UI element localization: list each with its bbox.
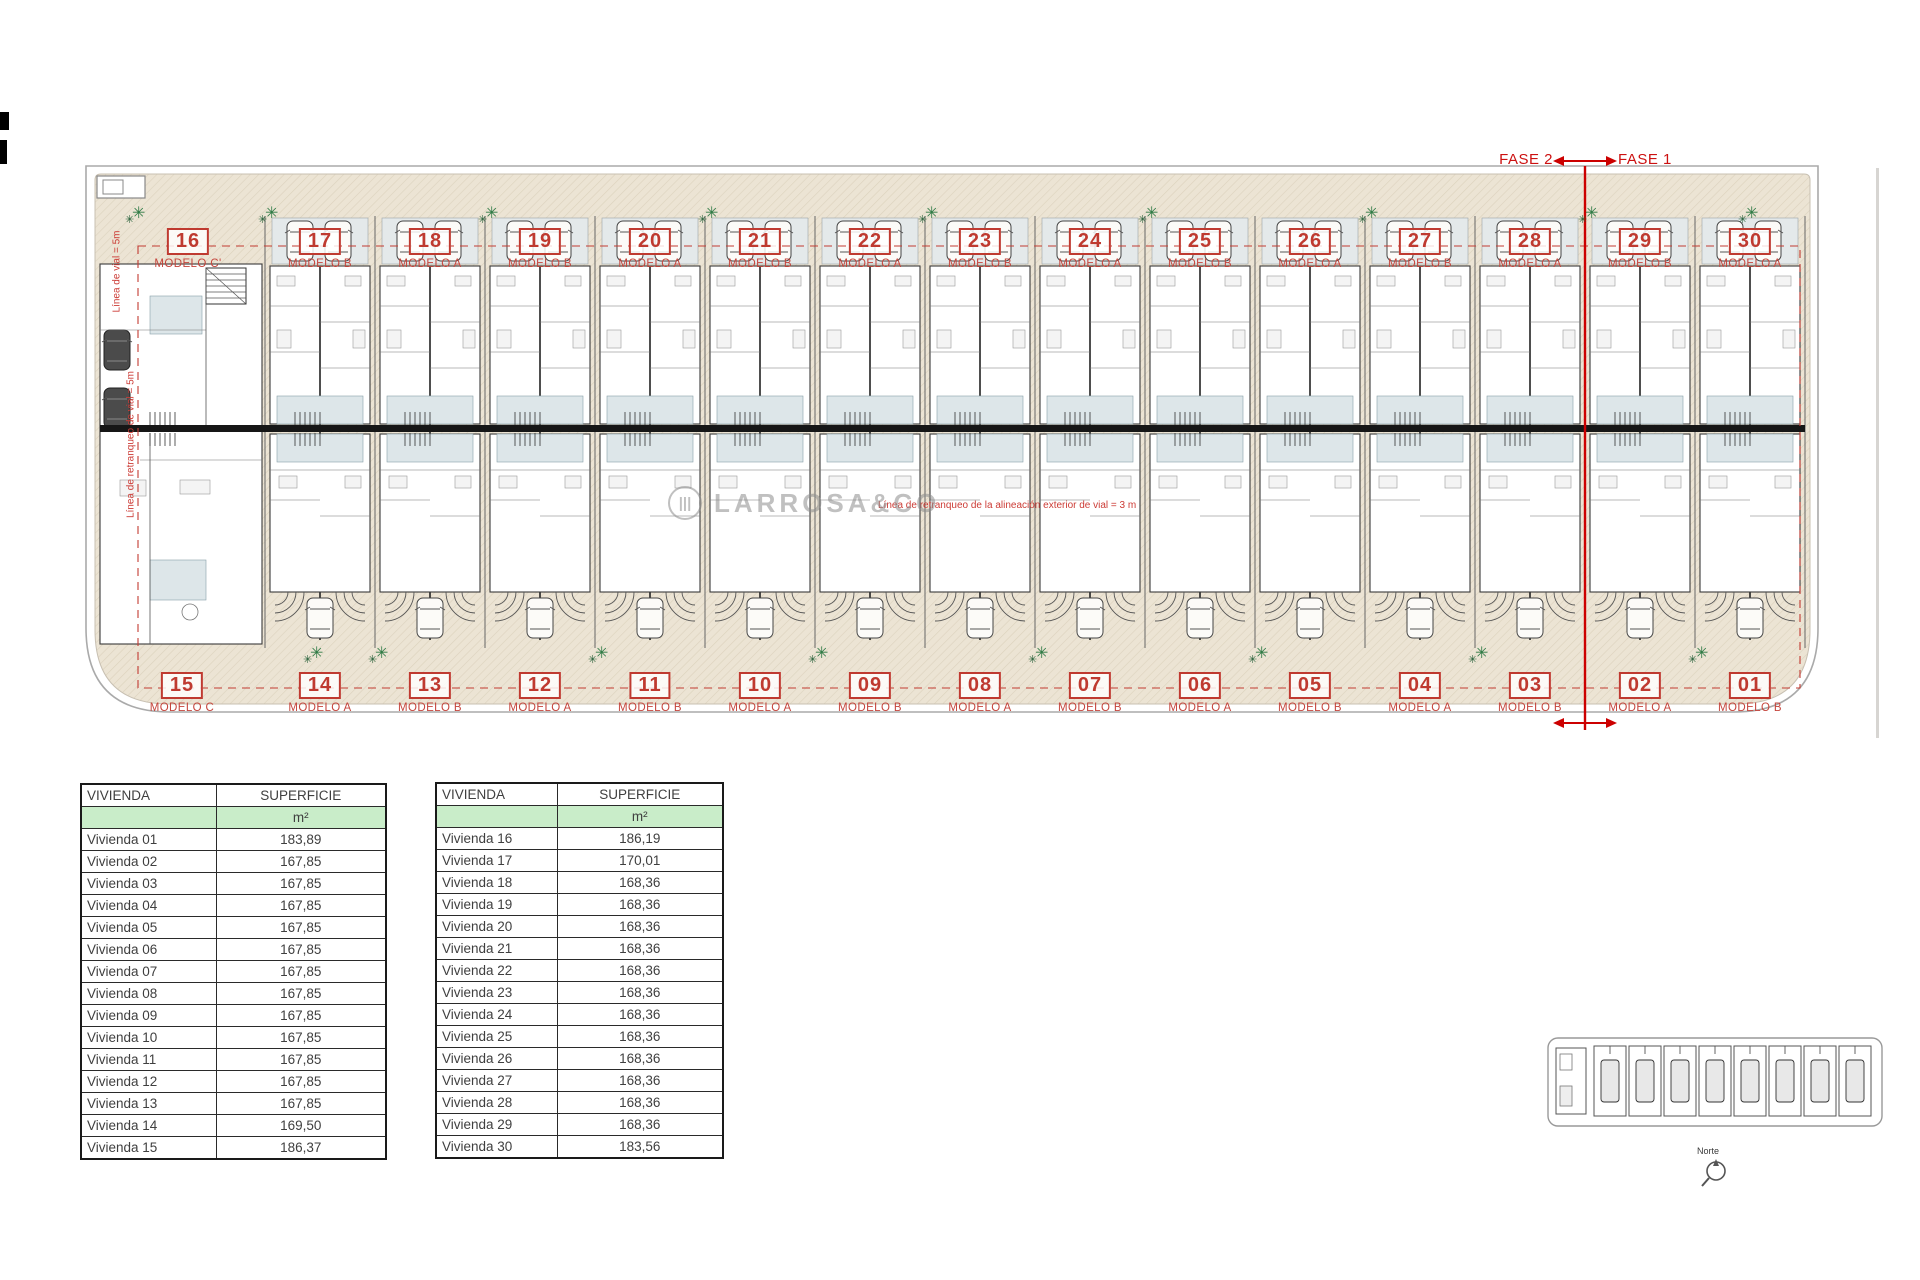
- fase-1-label: FASE 1: [1618, 151, 1672, 168]
- table-row: Vivienda 09167,85: [81, 1005, 386, 1027]
- unit-badge-02: 02: [1619, 672, 1661, 699]
- unit-modelo-11: MODELO B: [618, 702, 682, 714]
- vivienda-cell: Vivienda 04: [81, 895, 216, 917]
- superficie-cell: 168,36: [557, 916, 723, 938]
- unit-badge-19: 19: [519, 228, 561, 255]
- table-row: Vivienda 08167,85: [81, 983, 386, 1005]
- table-row: Vivienda 28168,36: [436, 1092, 723, 1114]
- vivienda-cell: Vivienda 09: [81, 1005, 216, 1027]
- vivienda-cell: Vivienda 26: [436, 1048, 557, 1070]
- superficie-cell: 186,37: [216, 1137, 386, 1160]
- vivienda-cell: Vivienda 24: [436, 1004, 557, 1026]
- vivienda-cell: Vivienda 23: [436, 982, 557, 1004]
- unit-modelo-21: MODELO B: [728, 258, 792, 270]
- table-row: Vivienda 11167,85: [81, 1049, 386, 1071]
- vivienda-cell: Vivienda 15: [81, 1137, 216, 1160]
- superficie-cell: 170,01: [557, 850, 723, 872]
- vivienda-cell: Vivienda 06: [81, 939, 216, 961]
- superficie-cell: 167,85: [216, 1049, 386, 1071]
- unit-modelo-05: MODELO B: [1278, 702, 1342, 714]
- unit-badge-04: 04: [1399, 672, 1441, 699]
- table-row: Vivienda 03167,85: [81, 873, 386, 895]
- table-row: Vivienda 19168,36: [436, 894, 723, 916]
- table-header-row: VIVIENDASUPERFICIE: [81, 784, 386, 807]
- fase-2-label: FASE 2: [1475, 151, 1553, 168]
- svg-text:✳: ✳: [1248, 654, 1257, 666]
- vivienda-header: VIVIENDA: [81, 784, 216, 807]
- unit-modelo-02: MODELO A: [1608, 702, 1671, 714]
- svg-text:✳: ✳: [258, 214, 267, 226]
- vivienda-header: VIVIENDA: [436, 783, 557, 806]
- table-units-row: m²: [436, 806, 723, 828]
- unit-badge-13: 13: [409, 672, 451, 699]
- table-row: Vivienda 18168,36: [436, 872, 723, 894]
- vivienda-cell: Vivienda 29: [436, 1114, 557, 1136]
- svg-text:✳: ✳: [1468, 654, 1477, 666]
- vivienda-cell: Vivienda 02: [81, 851, 216, 873]
- table-row: Vivienda 22168,36: [436, 960, 723, 982]
- unit-cell: m²: [216, 807, 386, 829]
- vivienda-cell: Vivienda 11: [81, 1049, 216, 1071]
- table-row: Vivienda 16186,19: [436, 828, 723, 850]
- unit-badge-08: 08: [959, 672, 1001, 699]
- vivienda-cell: Vivienda 07: [81, 961, 216, 983]
- unit-badge-18: 18: [409, 228, 451, 255]
- table-row: Vivienda 14169,50: [81, 1115, 386, 1137]
- vivienda-cell: Vivienda 01: [81, 829, 216, 851]
- vivienda-cell: Vivienda 19: [436, 894, 557, 916]
- unit-modelo-18: MODELO A: [398, 258, 461, 270]
- vivienda-cell: Vivienda 12: [81, 1071, 216, 1093]
- vivienda-cell: Vivienda 22: [436, 960, 557, 982]
- sheet-edge-mark: [0, 140, 7, 164]
- vivienda-cell: Vivienda 16: [436, 828, 557, 850]
- unit-modelo-10: MODELO A: [728, 702, 791, 714]
- drawing-sheet: { "fase": {"left": "FASE 2", "right": "F…: [0, 0, 1920, 1280]
- annotation-retranqueo-left: Línea de retranqueo de vial = 5m: [126, 350, 137, 540]
- superficie-table-1: VIVIENDASUPERFICIEm²Vivienda 01183,89Viv…: [80, 783, 387, 1160]
- unit-modelo-26: MODELO A: [1278, 258, 1341, 270]
- vivienda-cell: Vivienda 10: [81, 1027, 216, 1049]
- svg-text:✳: ✳: [368, 654, 377, 666]
- superficie-cell: 168,36: [557, 938, 723, 960]
- unit-badge-17: 17: [299, 228, 341, 255]
- table-row: Vivienda 20168,36: [436, 916, 723, 938]
- watermark-logo-icon: |||: [668, 486, 702, 520]
- unit-modelo-16: MODELO C': [154, 258, 221, 270]
- watermark: ||| LARROSA&CO: [668, 486, 940, 520]
- unit-badge-10: 10: [739, 672, 781, 699]
- table-row: Vivienda 02167,85: [81, 851, 386, 873]
- table-header-row: VIVIENDASUPERFICIE: [436, 783, 723, 806]
- unit-badge-12: 12: [519, 672, 561, 699]
- vivienda-cell: Vivienda 28: [436, 1092, 557, 1114]
- superficie-header: SUPERFICIE: [216, 784, 386, 807]
- unit-badge-09: 09: [849, 672, 891, 699]
- table-row: Vivienda 06167,85: [81, 939, 386, 961]
- superficie-cell: 167,85: [216, 873, 386, 895]
- table-row: Vivienda 25168,36: [436, 1026, 723, 1048]
- table-row: Vivienda 13167,85: [81, 1093, 386, 1115]
- superficie-cell: 167,85: [216, 917, 386, 939]
- table-row: Vivienda 04167,85: [81, 895, 386, 917]
- unit-modelo-08: MODELO A: [948, 702, 1011, 714]
- svg-text:✳: ✳: [588, 654, 597, 666]
- table-row: Vivienda 24168,36: [436, 1004, 723, 1026]
- unit-badge-14: 14: [299, 672, 341, 699]
- svg-text:✳: ✳: [1358, 214, 1367, 226]
- superficie-cell: 186,19: [557, 828, 723, 850]
- site-plan-drawing: ✳✳✳✳✳✳✳✳✳✳✳✳✳✳✳✳✳✳✳✳✳✳✳✳✳✳✳✳✳✳✳✳✳✳: [0, 0, 1920, 760]
- svg-text:✳: ✳: [1578, 214, 1587, 226]
- vivienda-cell: Vivienda 27: [436, 1070, 557, 1092]
- superficie-cell: 168,36: [557, 982, 723, 1004]
- unit-modelo-27: MODELO B: [1388, 258, 1452, 270]
- unit-modelo-15: MODELO C: [150, 702, 215, 714]
- table-row: Vivienda 17170,01: [436, 850, 723, 872]
- unit-modelo-12: MODELO A: [508, 702, 571, 714]
- key-plan: [1546, 1036, 1892, 1136]
- unit-modelo-14: MODELO A: [288, 702, 351, 714]
- vivienda-cell: Vivienda 30: [436, 1136, 557, 1159]
- unit-badge-21: 21: [739, 228, 781, 255]
- table-row: Vivienda 27168,36: [436, 1070, 723, 1092]
- unit-badge-23: 23: [959, 228, 1001, 255]
- svg-text:✳: ✳: [1738, 214, 1747, 226]
- unit-modelo-30: MODELO A: [1718, 258, 1781, 270]
- superficie-cell: 168,36: [557, 1114, 723, 1136]
- unit-modelo-13: MODELO B: [398, 702, 462, 714]
- svg-text:✳: ✳: [303, 654, 312, 666]
- superficie-cell: 167,85: [216, 1071, 386, 1093]
- svg-text:✳: ✳: [918, 214, 927, 226]
- svg-text:✳: ✳: [698, 214, 707, 226]
- unit-modelo-23: MODELO B: [948, 258, 1012, 270]
- table-row: Vivienda 01183,89: [81, 829, 386, 851]
- unit-badge-27: 27: [1399, 228, 1441, 255]
- vivienda-cell: Vivienda 13: [81, 1093, 216, 1115]
- superficie-cell: 167,85: [216, 1093, 386, 1115]
- unit-modelo-25: MODELO B: [1168, 258, 1232, 270]
- table-row: Vivienda 07167,85: [81, 961, 386, 983]
- table-units-row: m²: [81, 807, 386, 829]
- superficie-cell: 183,89: [216, 829, 386, 851]
- table-row: Vivienda 12167,85: [81, 1071, 386, 1093]
- superficie-header: SUPERFICIE: [557, 783, 723, 806]
- unit-badge-20: 20: [629, 228, 671, 255]
- svg-text:✳: ✳: [125, 214, 134, 226]
- svg-text:✳: ✳: [1688, 654, 1697, 666]
- unit-badge-28: 28: [1509, 228, 1551, 255]
- svg-text:✳: ✳: [808, 654, 817, 666]
- vivienda-cell: Vivienda 18: [436, 872, 557, 894]
- superficie-cell: 168,36: [557, 894, 723, 916]
- unit-modelo-20: MODELO A: [618, 258, 681, 270]
- svg-text:✳: ✳: [1138, 214, 1147, 226]
- unit-badge-24: 24: [1069, 228, 1111, 255]
- svg-text:✳: ✳: [478, 214, 487, 226]
- annotation-linea-vial: Línea de vial = 5m: [112, 212, 123, 332]
- vivienda-cell: Vivienda 03: [81, 873, 216, 895]
- table-row: Vivienda 21168,36: [436, 938, 723, 960]
- superficie-cell: 169,50: [216, 1115, 386, 1137]
- superficie-cell: 167,85: [216, 1027, 386, 1049]
- vivienda-cell: Vivienda 05: [81, 917, 216, 939]
- north-compass-icon: [1698, 1156, 1734, 1192]
- watermark-text: LARROSA&CO: [714, 488, 940, 519]
- vivienda-cell: Vivienda 20: [436, 916, 557, 938]
- unit-badge-07: 07: [1069, 672, 1111, 699]
- unit-modelo-19: MODELO B: [508, 258, 572, 270]
- table-row: Vivienda 29168,36: [436, 1114, 723, 1136]
- unit-badge-29: 29: [1619, 228, 1661, 255]
- unit-modelo-06: MODELO A: [1168, 702, 1231, 714]
- table-row: Vivienda 23168,36: [436, 982, 723, 1004]
- superficie-cell: 168,36: [557, 1026, 723, 1048]
- table-row: Vivienda 15186,37: [81, 1137, 386, 1160]
- plot-boundary-line: [1876, 168, 1879, 738]
- superficie-cell: 167,85: [216, 895, 386, 917]
- superficie-cell: 167,85: [216, 983, 386, 1005]
- unit-modelo-22: MODELO A: [838, 258, 901, 270]
- table-row: Vivienda 30183,56: [436, 1136, 723, 1159]
- superficie-cell: 168,36: [557, 960, 723, 982]
- vivienda-cell: Vivienda 25: [436, 1026, 557, 1048]
- superficie-cell: 167,85: [216, 851, 386, 873]
- unit-modelo-24: MODELO A: [1058, 258, 1121, 270]
- superficie-cell: 168,36: [557, 1048, 723, 1070]
- superficie-cell: 167,85: [216, 961, 386, 983]
- superficie-cell: 168,36: [557, 1070, 723, 1092]
- superficie-cell: 167,85: [216, 1005, 386, 1027]
- vivienda-cell: Vivienda 17: [436, 850, 557, 872]
- superficie-cell: 168,36: [557, 1004, 723, 1026]
- unit-modelo-04: MODELO A: [1388, 702, 1451, 714]
- unit-badge-06: 06: [1179, 672, 1221, 699]
- superficie-cell: 168,36: [557, 872, 723, 894]
- unit-badge-22: 22: [849, 228, 891, 255]
- unit-badge-05: 05: [1289, 672, 1331, 699]
- unit-badge-25: 25: [1179, 228, 1221, 255]
- table-row: Vivienda 10167,85: [81, 1027, 386, 1049]
- vivienda-cell: Vivienda 14: [81, 1115, 216, 1137]
- vivienda-cell: Vivienda 21: [436, 938, 557, 960]
- superficie-cell: 183,56: [557, 1136, 723, 1159]
- north-label: Norte: [1697, 1146, 1719, 1156]
- unit-badge-03: 03: [1509, 672, 1551, 699]
- sheet-edge-mark: [0, 112, 9, 130]
- unit-modelo-28: MODELO A: [1498, 258, 1561, 270]
- unit-cell: m²: [557, 806, 723, 828]
- unit-modelo-07: MODELO B: [1058, 702, 1122, 714]
- table-row: Vivienda 26168,36: [436, 1048, 723, 1070]
- unit-badge-01: 01: [1729, 672, 1771, 699]
- svg-text:✳: ✳: [1028, 654, 1037, 666]
- unit-badge-16: 16: [167, 228, 209, 255]
- unit-modelo-01: MODELO B: [1718, 702, 1782, 714]
- unit-modelo-09: MODELO B: [838, 702, 902, 714]
- empty-cell: [436, 806, 557, 828]
- unit-badge-30: 30: [1729, 228, 1771, 255]
- vivienda-cell: Vivienda 08: [81, 983, 216, 1005]
- unit-modelo-03: MODELO B: [1498, 702, 1562, 714]
- superficie-cell: 167,85: [216, 939, 386, 961]
- superficie-cell: 168,36: [557, 1092, 723, 1114]
- table-row: Vivienda 05167,85: [81, 917, 386, 939]
- empty-cell: [81, 807, 216, 829]
- unit-badge-11: 11: [629, 672, 670, 699]
- unit-badge-26: 26: [1289, 228, 1331, 255]
- unit-modelo-29: MODELO B: [1608, 258, 1672, 270]
- superficie-table-2: VIVIENDASUPERFICIEm²Vivienda 16186,19Viv…: [435, 782, 724, 1159]
- unit-badge-15: 15: [161, 672, 203, 699]
- unit-modelo-17: MODELO B: [288, 258, 352, 270]
